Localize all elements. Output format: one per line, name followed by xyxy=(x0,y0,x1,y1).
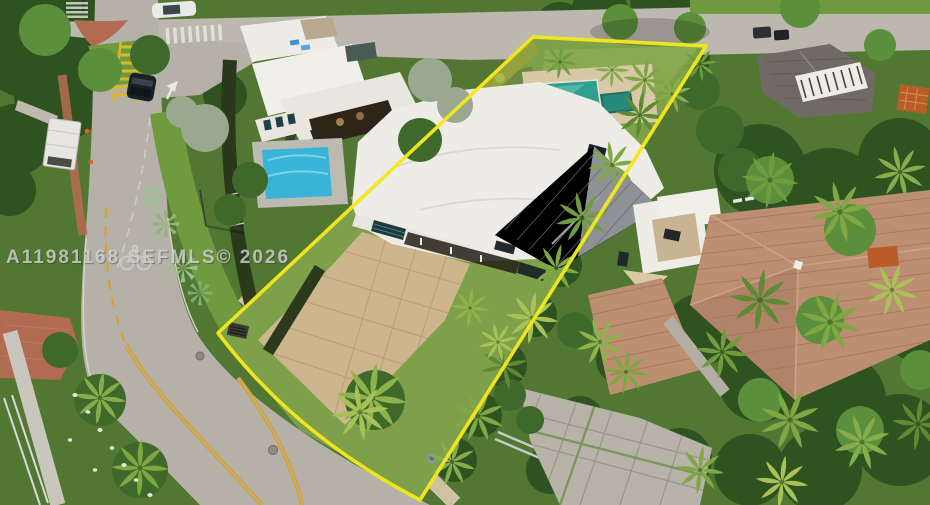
orange-play-structure xyxy=(896,84,929,114)
utility-trailer xyxy=(43,118,81,170)
watermark: A11981168 SEFMLS© 2026 xyxy=(6,246,290,270)
traffic-cone xyxy=(89,160,94,165)
aerial-scene: A11981168 SEFMLS© 2026 xyxy=(0,0,930,505)
stone-roof-inset xyxy=(300,17,338,40)
white-car xyxy=(152,0,197,18)
parked-car xyxy=(774,29,790,40)
orange-structure xyxy=(867,246,899,269)
trash-bins xyxy=(617,251,629,266)
porch-column xyxy=(420,238,422,245)
parked-car xyxy=(753,26,772,38)
manhole-cover xyxy=(196,352,204,360)
manhole-cover xyxy=(269,446,278,455)
traffic-cone xyxy=(85,129,90,134)
aerial-property-photo: A11981168 SEFMLS© 2026 xyxy=(0,0,930,505)
suv-car xyxy=(126,72,157,102)
